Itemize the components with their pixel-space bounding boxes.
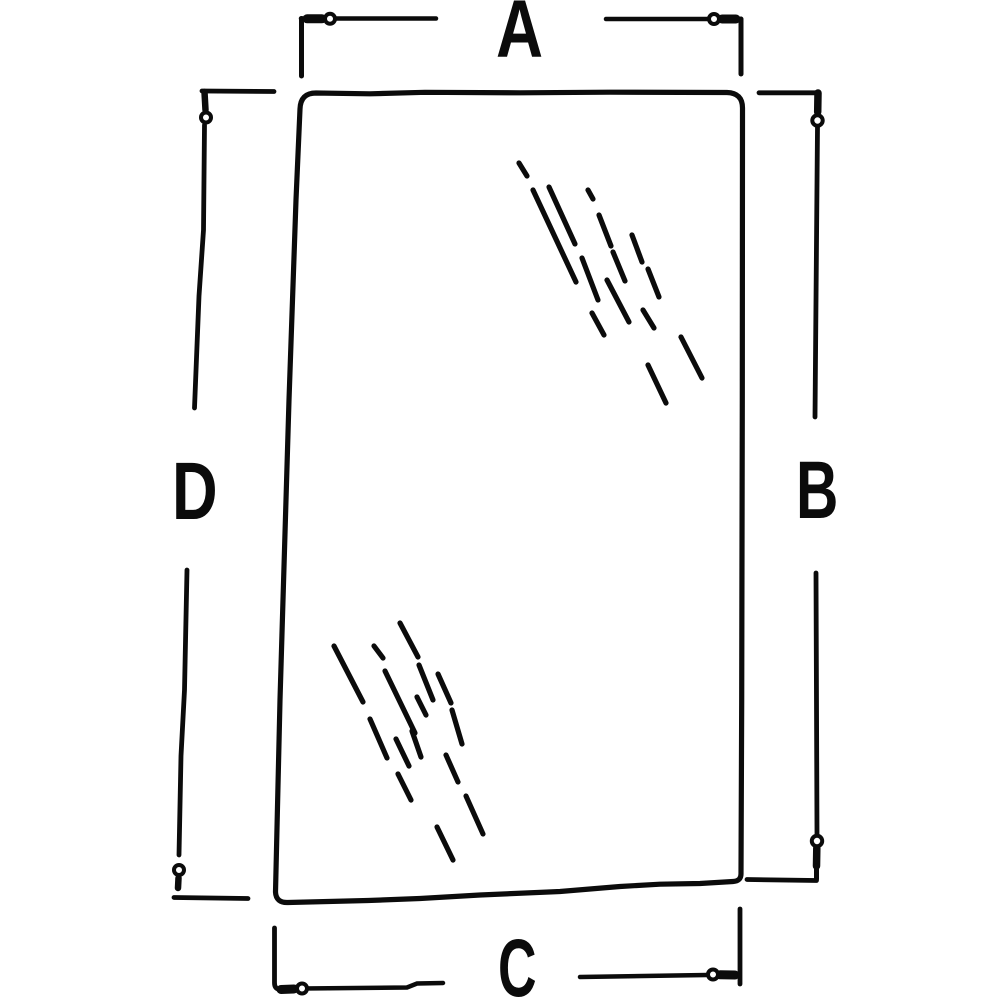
svg-text:D: D — [172, 446, 218, 537]
svg-text:B: B — [796, 446, 838, 537]
svg-text:A: A — [496, 0, 543, 75]
svg-text:C: C — [498, 923, 537, 1000]
